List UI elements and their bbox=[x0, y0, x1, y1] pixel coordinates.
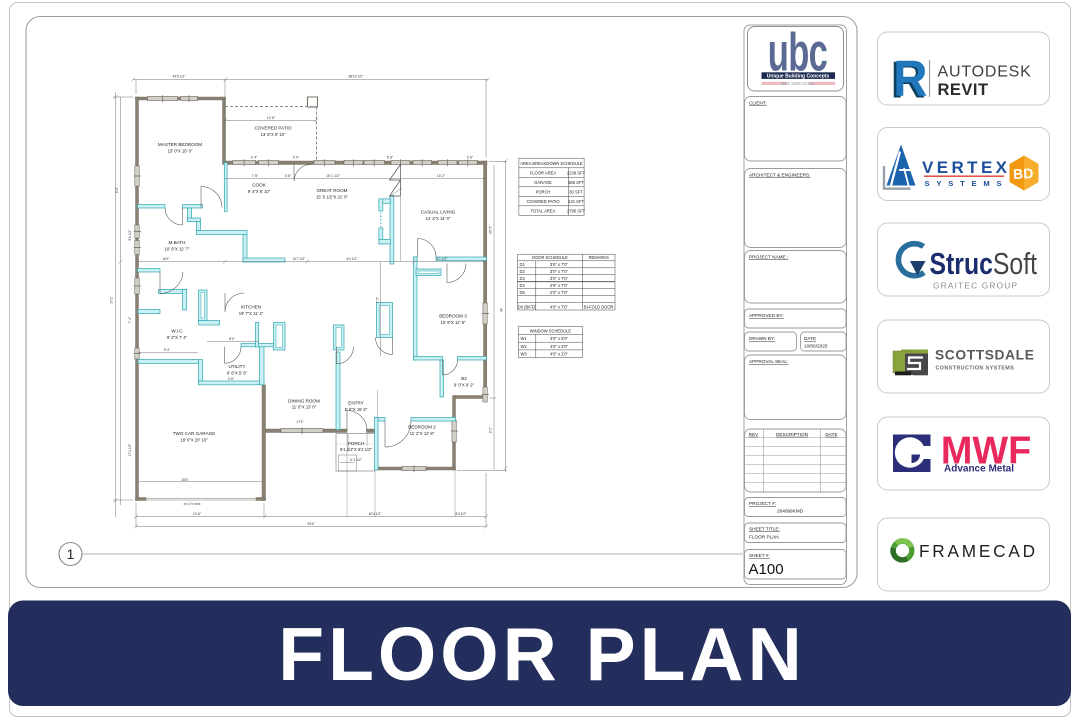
svg-text:8'4": 8'4" bbox=[229, 337, 235, 341]
svg-text:REMARKS: REMARKS bbox=[589, 255, 610, 260]
svg-text:10'7 1/2": 10'7 1/2" bbox=[293, 257, 307, 261]
svg-text:VERTEX: VERTEX bbox=[922, 158, 1010, 177]
svg-text:DOOR SCHEDULE: DOOR SCHEDULE bbox=[532, 255, 568, 260]
svg-text:16'4": 16'4" bbox=[162, 257, 170, 261]
svg-text:9'8 1/2": 9'8 1/2" bbox=[128, 229, 132, 241]
svg-text:11' 2"X 12' 8": 11' 2"X 12' 8" bbox=[410, 431, 435, 436]
svg-text:D2: D2 bbox=[520, 269, 526, 274]
svg-text:43'6 1/2": 43'6 1/2" bbox=[173, 74, 187, 78]
svg-text:10' 8"X 12' 8": 10' 8"X 12' 8" bbox=[441, 320, 466, 325]
svg-text:1: 1 bbox=[67, 546, 75, 562]
svg-text:DRAWN BY:: DRAWN BY: bbox=[749, 336, 775, 341]
svg-text:17'4 1/2": 17'4 1/2" bbox=[128, 443, 132, 457]
svg-text:93'4": 93'4" bbox=[307, 522, 315, 526]
svg-text:D6 (BIFD): D6 (BIFD) bbox=[518, 304, 537, 309]
svg-text:386 SFT: 386 SFT bbox=[568, 180, 584, 185]
svg-text:CONSTRUCTION SYSTEMS: CONSTRUCTION SYSTEMS bbox=[936, 365, 1015, 371]
svg-text:FLOOR PLAN: FLOOR PLAN bbox=[278, 612, 805, 696]
svg-text:AREA BREAKDOWN SCHEDULE: AREA BREAKDOWN SCHEDULE bbox=[520, 161, 583, 166]
svg-text:15'4": 15'4" bbox=[181, 478, 189, 482]
svg-text:3'.8": 3'.8" bbox=[285, 174, 292, 178]
svg-text:MASTER BEDROOM: MASTER BEDROOM bbox=[158, 142, 202, 147]
svg-text:30 SFT: 30 SFT bbox=[569, 190, 583, 195]
svg-text:ARCHITECT & ENGINEERS:: ARCHITECT & ENGINEERS: bbox=[749, 173, 810, 178]
svg-text:14' 2"X 14' 0": 14' 2"X 14' 0" bbox=[426, 216, 451, 221]
svg-text:3'6" x 7'0": 3'6" x 7'0" bbox=[550, 262, 568, 267]
svg-text:KITCHEN: KITCHEN bbox=[241, 305, 261, 310]
svg-text:A100: A100 bbox=[749, 561, 784, 578]
svg-text:APPROVAL SEAL:: APPROVAL SEAL: bbox=[749, 359, 788, 364]
svg-text:REV: REV bbox=[749, 432, 760, 437]
svg-text:W3: W3 bbox=[521, 352, 528, 357]
svg-text:37'2": 37'2" bbox=[110, 296, 114, 304]
svg-text:4'.6": 4'.6" bbox=[228, 377, 235, 381]
svg-text:14'.2": 14'.2" bbox=[437, 174, 446, 178]
svg-text:REVIT: REVIT bbox=[938, 81, 989, 99]
svg-text:GREAT ROOM: GREAT ROOM bbox=[317, 188, 348, 193]
svg-text:Advance Metal: Advance Metal bbox=[944, 464, 1014, 475]
svg-text:3'0" x 7'0": 3'0" x 7'0" bbox=[550, 269, 568, 274]
svg-text:M.BATH: M.BATH bbox=[168, 240, 185, 245]
svg-text:DESCRIPTION: DESCRIPTION bbox=[776, 432, 808, 437]
svg-text:WINDOW SCHEDULE: WINDOW SCHEDULE bbox=[530, 329, 572, 334]
svg-text:COVERED PATIO: COVERED PATIO bbox=[254, 126, 292, 131]
svg-text:17'4": 17'4" bbox=[296, 420, 304, 424]
svg-text:19' 0"X 20' 10": 19' 0"X 20' 10" bbox=[180, 438, 208, 443]
svg-text:SYSTEMS: SYSTEMS bbox=[925, 179, 1009, 188]
svg-text:GRAITEC GROUP: GRAITEC GROUP bbox=[933, 281, 1018, 291]
svg-text:ENTRY: ENTRY bbox=[348, 401, 364, 406]
svg-text:4'0" x 3'0": 4'0" x 3'0" bbox=[550, 344, 568, 349]
svg-text:3'0" x 7'0": 3'0" x 7'0" bbox=[550, 276, 568, 281]
svg-text:BD: BD bbox=[1013, 165, 1034, 182]
svg-text:R: R bbox=[893, 50, 927, 107]
svg-text:2238 SFT: 2238 SFT bbox=[567, 171, 585, 176]
svg-text:D5: D5 bbox=[520, 290, 526, 295]
svg-text:D4: D4 bbox=[520, 283, 526, 288]
svg-text:43': 43' bbox=[500, 307, 504, 312]
svg-text:6' 6"X 5' 8": 6' 6"X 5' 8" bbox=[227, 371, 248, 376]
svg-text:264099KMD: 264099KMD bbox=[777, 509, 804, 514]
svg-text:131 SFT: 131 SFT bbox=[568, 199, 584, 204]
svg-text:PROJECT NAME :: PROJECT NAME : bbox=[749, 255, 788, 260]
svg-text:BEDROOM 3: BEDROOM 3 bbox=[439, 314, 467, 319]
svg-text:13' 0"X 16' 0": 13' 0"X 16' 0" bbox=[168, 149, 193, 154]
svg-text:3'.0": 3'.0" bbox=[293, 156, 300, 160]
svg-text:GARAGE: GARAGE bbox=[534, 180, 552, 185]
svg-text:9'.2": 9'.2" bbox=[489, 426, 493, 433]
svg-text:9' 0"X 9' 2": 9' 0"X 9' 2" bbox=[454, 383, 475, 388]
svg-text:30'.5": 30'.5" bbox=[489, 225, 493, 234]
svg-text:TWO CAR GARAGE: TWO CAR GARAGE bbox=[173, 431, 216, 436]
svg-text:5' 6"X 15' 6": 5' 6"X 15' 6" bbox=[345, 407, 368, 412]
svg-text:2796 SFT: 2796 SFT bbox=[567, 209, 585, 214]
svg-text:W1: W1 bbox=[521, 336, 528, 341]
svg-text:13' 8": 13' 8" bbox=[267, 116, 276, 120]
svg-text:5'.8": 5'.8" bbox=[387, 156, 394, 160]
svg-text:5'4 1/2": 5'4 1/2" bbox=[347, 257, 359, 261]
svg-text:10' 6"X 12' 7": 10' 6"X 12' 7" bbox=[165, 247, 190, 252]
svg-text:15' 5 1/2"X 21' 0": 15' 5 1/2"X 21' 0" bbox=[316, 195, 348, 200]
svg-text:DATE: DATE bbox=[825, 432, 837, 437]
svg-text:DINING ROOM: DINING ROOM bbox=[288, 399, 320, 404]
svg-text:xx'-x"x xxxx: xx'-x"x xxxx bbox=[183, 502, 200, 506]
svg-text:6'1 1/2"X 6'3 1/2": 6'1 1/2"X 6'3 1/2" bbox=[340, 447, 372, 452]
svg-text:PORCH: PORCH bbox=[348, 441, 365, 446]
svg-text:7'.0": 7'.0" bbox=[376, 296, 380, 303]
svg-text:BI-FOLD DOOR: BI-FOLD DOOR bbox=[584, 304, 614, 309]
svg-text:SHEET TITLE:: SHEET TITLE: bbox=[749, 527, 780, 532]
svg-text:D1: D1 bbox=[520, 262, 526, 267]
svg-text:B2: B2 bbox=[461, 376, 467, 381]
svg-text:UTILITY: UTILITY bbox=[228, 364, 245, 369]
svg-text:AUTODESK: AUTODESK bbox=[938, 64, 1032, 81]
svg-text:9'.8": 9'.8" bbox=[115, 186, 119, 193]
svg-text:SHEET #:: SHEET #: bbox=[749, 553, 770, 558]
svg-text:FLOOR PLAN: FLOOR PLAN bbox=[749, 535, 779, 540]
svg-text:88'10 1/2": 88'10 1/2" bbox=[349, 74, 364, 78]
svg-text:7'.5": 7'.5" bbox=[252, 174, 259, 178]
svg-text:FRAMECAD: FRAMECAD bbox=[919, 541, 1038, 561]
svg-text:W2: W2 bbox=[521, 344, 528, 349]
svg-text:D3: D3 bbox=[520, 276, 526, 281]
svg-text:11' 0"X 13' 0": 11' 0"X 13' 0" bbox=[292, 405, 317, 410]
svg-text:4'1 1/2": 4'1 1/2" bbox=[437, 257, 449, 261]
svg-text:FLOOR AREA: FLOOR AREA bbox=[530, 171, 556, 176]
svg-text:2'6" x 7'0": 2'6" x 7'0" bbox=[550, 283, 568, 288]
svg-text:8'4 1/2": 8'4 1/2" bbox=[456, 512, 468, 516]
svg-text:CLIENT:: CLIENT: bbox=[749, 101, 766, 106]
svg-text:19'-6": 19'-6" bbox=[193, 512, 202, 516]
svg-text:Unique Building Concepts: Unique Building Concepts bbox=[767, 74, 830, 80]
svg-text:6'.1 1/2": 6'.1 1/2" bbox=[350, 458, 363, 462]
svg-text:COVERED PATIO: COVERED PATIO bbox=[526, 199, 559, 204]
svg-text:TOTAL AREA: TOTAL AREA bbox=[531, 209, 556, 214]
svg-text:10/06/2025: 10/06/2025 bbox=[804, 344, 828, 349]
svg-text:PORCH: PORCH bbox=[536, 190, 551, 195]
svg-text:13' 8"X 9' 10": 13' 8"X 9' 10" bbox=[261, 132, 286, 137]
svg-text:4'0" x 7'0": 4'0" x 7'0" bbox=[550, 304, 568, 309]
svg-text:9'.4": 9'.4" bbox=[164, 348, 171, 352]
svg-text:BIM SERVICES: BIM SERVICES bbox=[782, 81, 815, 86]
svg-text:3'0" x 5'0": 3'0" x 5'0" bbox=[550, 336, 568, 341]
svg-text:PROJECT #:: PROJECT #: bbox=[749, 501, 776, 506]
svg-text:4'.6": 4'.6" bbox=[467, 156, 474, 160]
svg-text:9' 4"X 6' 10": 9' 4"X 6' 10" bbox=[248, 189, 271, 194]
svg-text:40'4 1/2": 40'4 1/2" bbox=[369, 512, 383, 516]
svg-text:BEDROOM 2: BEDROOM 2 bbox=[408, 425, 436, 430]
svg-text:9' 2"X 7' 4": 9' 2"X 7' 4" bbox=[167, 335, 188, 340]
svg-text:COOK: COOK bbox=[252, 183, 266, 188]
svg-text:7'.4": 7'.4" bbox=[128, 316, 132, 323]
svg-text:2'0" x 7'0": 2'0" x 7'0" bbox=[550, 290, 568, 295]
svg-text:19' 7"X 11' 4": 19' 7"X 11' 4" bbox=[239, 311, 264, 316]
svg-text:StrucSoft: StrucSoft bbox=[930, 246, 1038, 280]
svg-text:SCOTTSDALE: SCOTTSDALE bbox=[935, 348, 1035, 363]
svg-text:W.I.C: W.I.C bbox=[171, 329, 183, 334]
svg-text:4'0" x 2'0": 4'0" x 2'0" bbox=[550, 352, 568, 357]
svg-text:CASUAL LIVING: CASUAL LIVING bbox=[421, 210, 456, 215]
svg-text:2'.4": 2'.4" bbox=[251, 156, 258, 160]
svg-text:APPROVED BY:: APPROVED BY: bbox=[749, 313, 784, 318]
svg-text:15'.1 1/2": 15'.1 1/2" bbox=[326, 174, 341, 178]
svg-text:DATE: DATE bbox=[804, 336, 816, 341]
